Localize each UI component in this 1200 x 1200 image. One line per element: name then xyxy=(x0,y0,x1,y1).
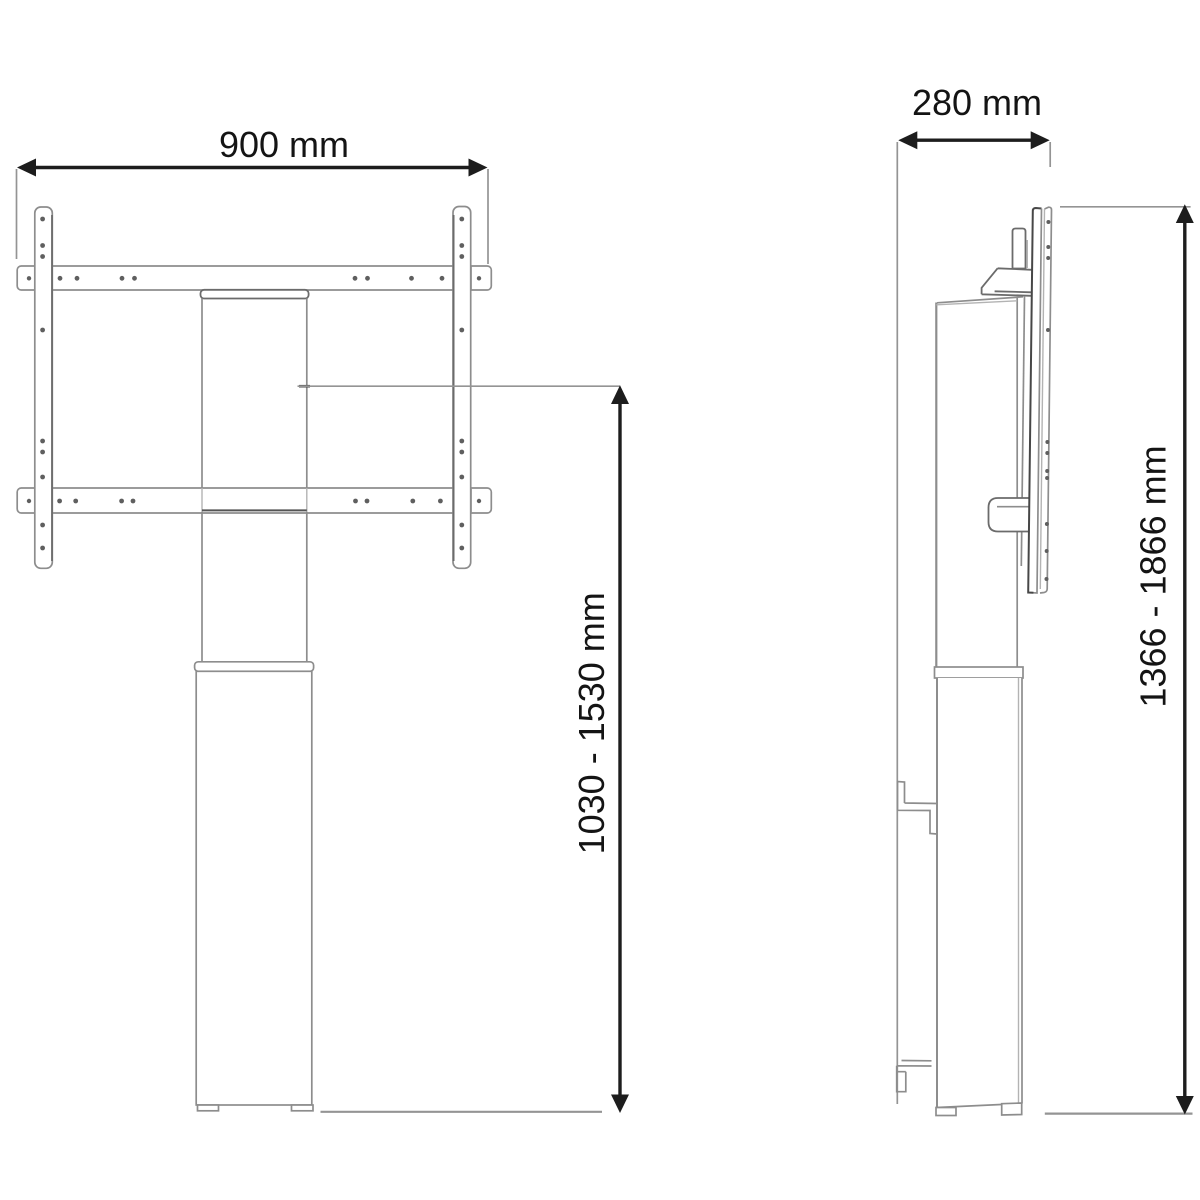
svg-text:1366 - 1866 mm: 1366 - 1866 mm xyxy=(1133,445,1174,707)
svg-text:1030 - 1530 mm: 1030 - 1530 mm xyxy=(571,592,612,854)
svg-text:280 mm: 280 mm xyxy=(912,82,1042,123)
svg-text:900 mm: 900 mm xyxy=(219,124,349,165)
